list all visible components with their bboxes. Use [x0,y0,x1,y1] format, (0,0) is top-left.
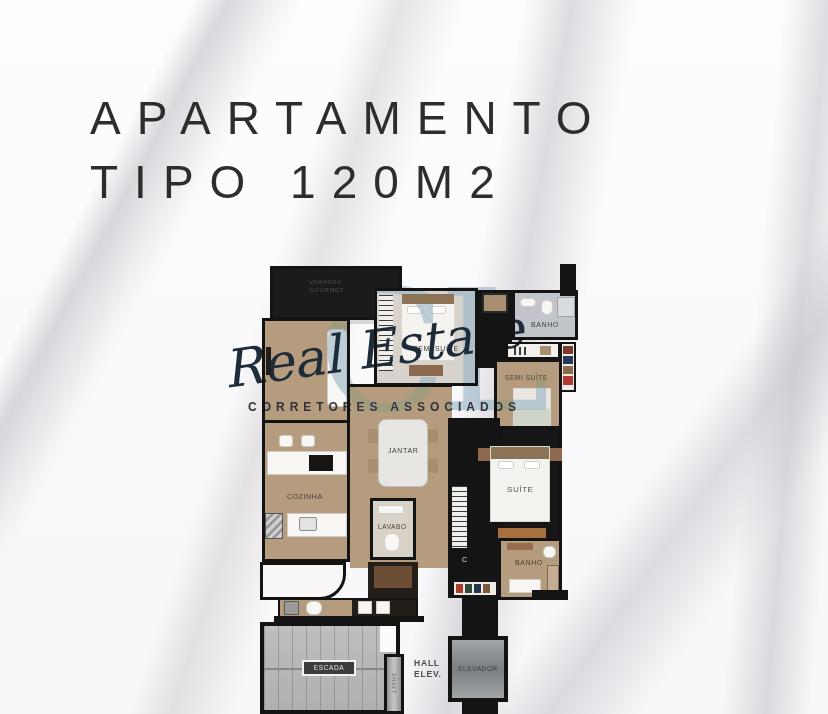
wardrobe-column [560,342,576,392]
chair [428,429,438,443]
room-semi-suite-top: SEMI SUÍTE [374,288,478,386]
washer-icon [358,601,372,614]
title-line-2: TIPO 120M2 [90,150,608,214]
cooktop [309,455,333,471]
chair [368,459,378,473]
tv-icon [266,347,271,375]
washer-icon [376,601,390,614]
nightstand [550,448,562,461]
elevator: ELEVADOR [448,636,508,702]
sink [378,505,404,514]
escada-label-box: ESCADA [302,660,356,676]
banho-suite-label: BANHO [515,559,543,568]
room-lavabo: LAVABO [370,498,416,560]
closet-rack [454,582,496,595]
appliance [284,601,299,615]
hanger-icon [524,347,526,355]
varanda-gourmet-label: VARANDA GOURMET [309,279,357,294]
shaft: SHAFT [384,654,404,714]
escada-label: ESCADA [314,664,344,672]
nightstand [478,448,490,461]
sofa [327,329,347,407]
clothes-item [474,584,481,593]
wall-below-elevator [462,702,498,714]
window-hatch [452,486,467,548]
title-line-1: APARTAMENTO [90,86,608,150]
chair [368,429,378,443]
suite-label: SUÍTE [507,485,534,495]
clothes-item [563,356,573,364]
clothes-item [563,346,573,354]
sink [520,298,536,307]
room-banho-top: BANHO [512,290,578,340]
hall-elev-label: HALL ELEV. [414,658,448,679]
jantar-label: JANTAR [388,447,418,456]
stairs-notch [380,626,396,652]
stairs: ESCADA [260,622,400,714]
wall-above-elevator [462,596,498,636]
kitchen-island [267,451,347,475]
semi-suite-top-label: SEMI SUÍTE [413,345,459,354]
hanger-icon [514,347,516,355]
page-title: APARTAMENTO TIPO 120M2 [90,86,608,214]
pillow [524,461,540,469]
service-area [368,562,418,600]
pillow [498,461,514,469]
circulacao-label: C [462,556,468,565]
cabinet [374,566,412,588]
shaft-label: SHAFT [391,673,397,694]
pillow [407,306,423,314]
closet-box [482,293,508,313]
clothes-item [563,376,573,385]
floor-plan: VARANDA GOURMET SALA TV SEMI SUÍTE [256,262,578,714]
elevador-label: ELEVADOR [458,665,498,673]
wall-corner-topright [560,264,576,296]
semi-suite-right-label: SEMI SUÍTE [505,374,548,382]
window-hatch [379,295,393,371]
clothes-item [456,584,463,593]
clothes-item [465,584,472,593]
toilet [541,300,553,315]
service-strip [278,598,418,618]
wall-bar-right [532,590,568,600]
clothes-item [563,366,573,374]
storage-box [540,346,551,355]
headboard [402,294,454,304]
kitchen-sink [299,517,317,531]
flyer: APARTAMENTO TIPO 120M2 VARANDA GOURMET S… [0,0,828,714]
terrace-white [260,562,346,600]
stool [301,435,315,447]
clothes-item [483,584,490,593]
bench [409,365,443,376]
hanger-icon [519,347,521,355]
shower [557,297,575,317]
toilet [306,601,322,615]
chair [428,459,438,473]
lavabo-label: LAVABO [378,523,407,531]
room-cozinha: COZINHA [262,420,350,562]
stool [279,435,293,447]
washer-dark-zone [352,600,416,616]
bath-mat [507,543,533,550]
toilet [543,546,556,558]
fridge [265,513,283,539]
cozinha-label: COZINHA [287,493,323,502]
closet-strip [506,342,560,359]
pillow [430,306,446,314]
kitchen-counter [287,513,347,537]
toilet [384,533,400,552]
suite-bed: SUÍTE [490,446,550,522]
banho-top-label: BANHO [531,321,559,330]
headboard [491,447,549,459]
